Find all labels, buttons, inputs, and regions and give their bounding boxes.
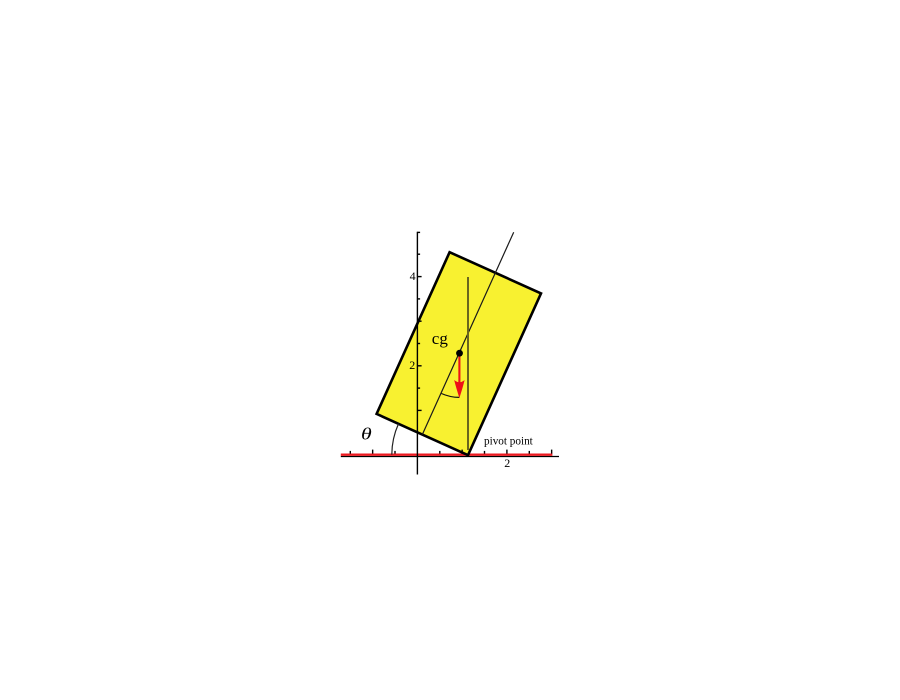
svg-text:2: 2 — [409, 358, 415, 372]
svg-text:cg: cg — [432, 329, 449, 348]
svg-text:pivot point: pivot point — [484, 435, 534, 447]
svg-text:θ: θ — [361, 426, 372, 444]
svg-text:4: 4 — [410, 269, 416, 283]
svg-text:2: 2 — [504, 456, 510, 470]
